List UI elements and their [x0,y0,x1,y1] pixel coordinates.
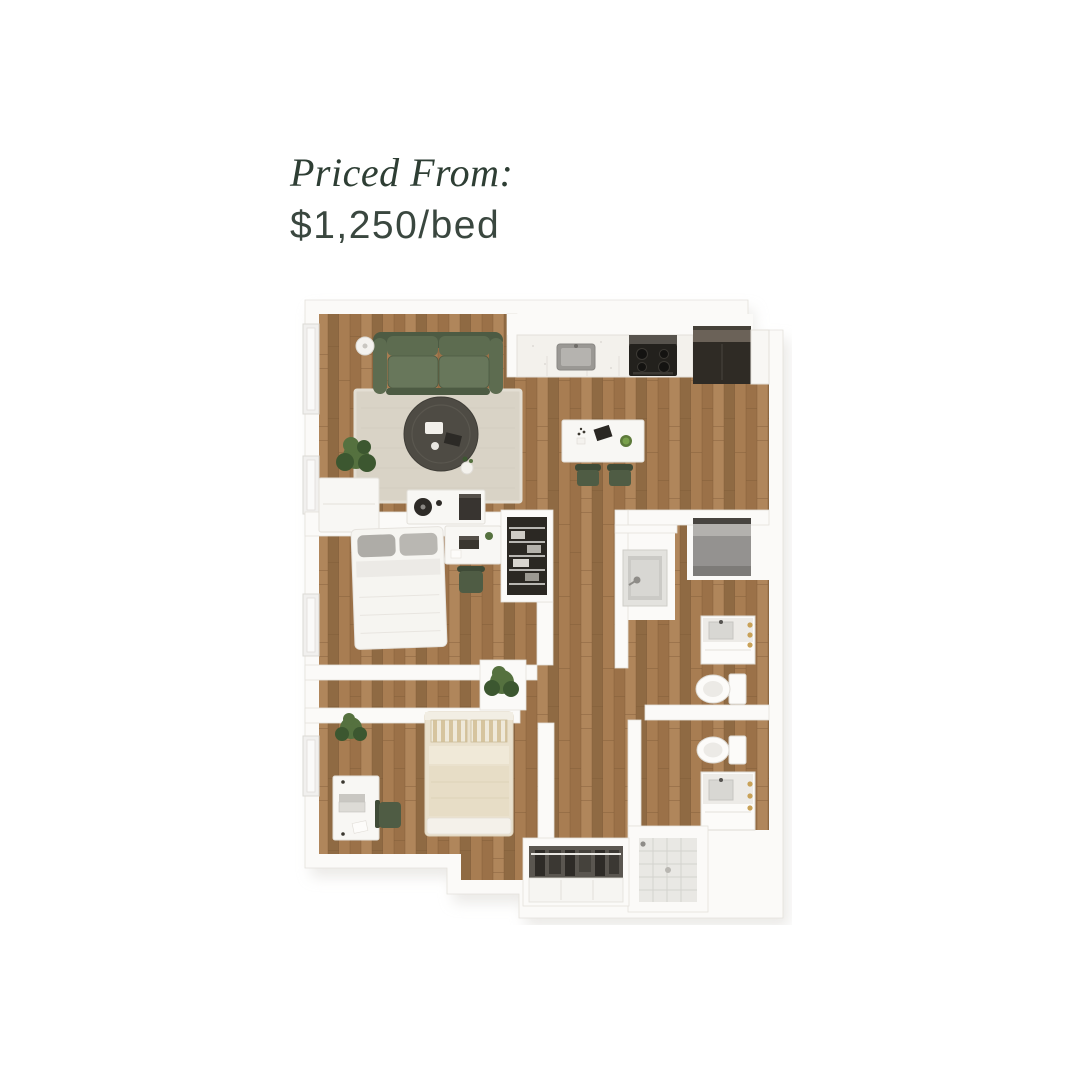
priced-from-label: Priced From: [290,148,513,198]
shower-drain [665,867,671,873]
toilet-1 [696,674,746,704]
hall-ledge [480,660,526,710]
desk2-laptop [339,794,365,802]
side-vase [461,457,473,475]
desk-chair-2 [375,800,401,828]
vanity-2 [701,772,755,830]
price-block: Priced From: $1,250/bed [290,148,513,250]
end-cabinet [751,330,769,384]
bathroom-1 [696,616,755,704]
media-console [407,490,485,524]
vanity-1 [701,616,755,664]
floor-plan-rendering [295,288,792,925]
desk-2 [333,776,379,840]
window [303,324,319,414]
kitchen-sink [557,344,595,370]
bed-1 [351,526,447,649]
window [303,594,319,656]
wire-shelving-closet [501,510,553,602]
window [303,456,319,514]
desk-1 [445,526,501,564]
stove [629,335,677,376]
shower-head-icon [640,841,645,846]
floor-lamp [356,337,374,355]
refrigerator [693,326,751,384]
dining-chair [575,464,601,486]
wardrobe-closet [523,838,629,906]
shower [628,826,708,912]
corner-platform [703,830,769,904]
bed-2 [425,712,513,836]
laundry-basin [623,550,667,606]
window [303,736,319,796]
price-value: $1,250/bed [290,202,513,250]
toilet-2 [697,736,746,764]
dining-chair [607,464,633,486]
desk-plant [485,532,493,540]
kitchen [507,314,769,384]
storage-cabinet [319,478,379,532]
washer-dryer [693,518,751,576]
desk-chair-1 [457,566,485,593]
